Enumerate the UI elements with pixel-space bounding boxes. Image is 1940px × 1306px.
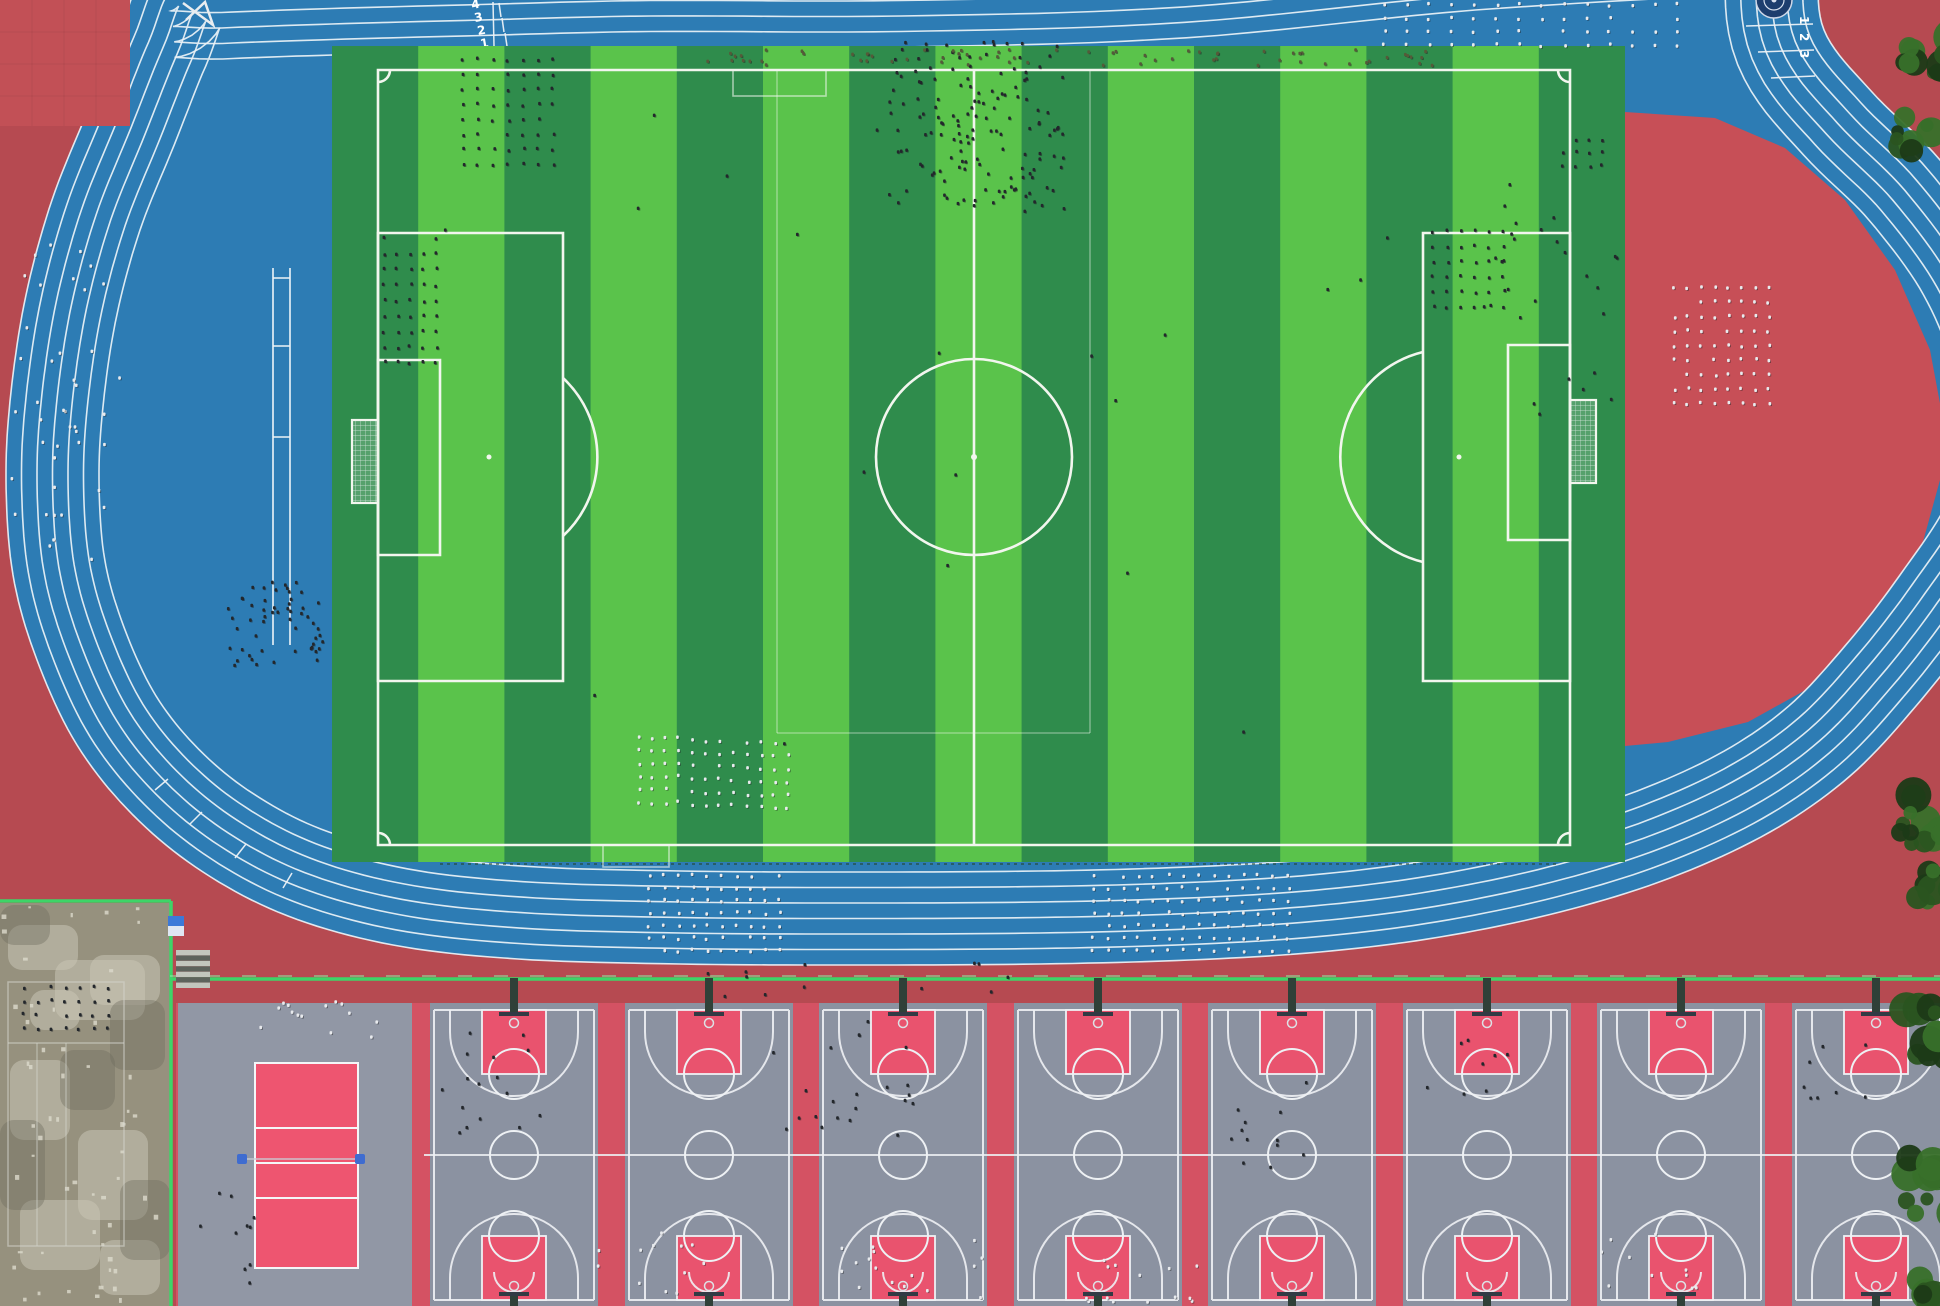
- net-post: [355, 1154, 365, 1164]
- lane-number: 3: [1797, 50, 1811, 58]
- basketball-hoop: [510, 978, 518, 1014]
- basketball-hoop: [1094, 1296, 1102, 1306]
- basketball-hoop: [1872, 978, 1880, 1014]
- basketball-hoop: [1483, 978, 1491, 1014]
- aerial-sports-complex-photo: 4321123: [0, 0, 1940, 1306]
- basketball-hoop: [1094, 978, 1102, 1014]
- net-post: [237, 1154, 247, 1164]
- basketball-hoop: [1677, 978, 1685, 1014]
- lane-number: 1: [1797, 16, 1811, 24]
- soccer-field: [332, 46, 1625, 867]
- stairs: [176, 950, 210, 988]
- scene-svg: 4321123: [0, 0, 1940, 1306]
- red-plaza-corner: [0, 0, 130, 126]
- basketball-hoop: [705, 1296, 713, 1306]
- basketball-hoop: [899, 1296, 907, 1306]
- basketball-hoop: [1288, 978, 1296, 1014]
- old-concrete-court: [0, 903, 170, 1306]
- basketball-hoop: [1872, 1296, 1880, 1306]
- basketball-hoop: [1288, 1296, 1296, 1306]
- basketball-courts-zone: [424, 978, 1940, 1306]
- goal-right: [1570, 400, 1596, 483]
- volleyball-court: [255, 1063, 358, 1268]
- lane-number: 2: [1797, 33, 1811, 41]
- blue-sign: [168, 916, 184, 936]
- basketball-hoop: [1677, 1296, 1685, 1306]
- basketball-hoop: [705, 978, 713, 1014]
- volleyball-zone: [178, 1003, 412, 1306]
- basketball-hoop: [510, 1296, 518, 1306]
- basketball-hoop: [899, 978, 907, 1014]
- goal-left: [352, 420, 378, 503]
- basketball-hoop: [1483, 1296, 1491, 1306]
